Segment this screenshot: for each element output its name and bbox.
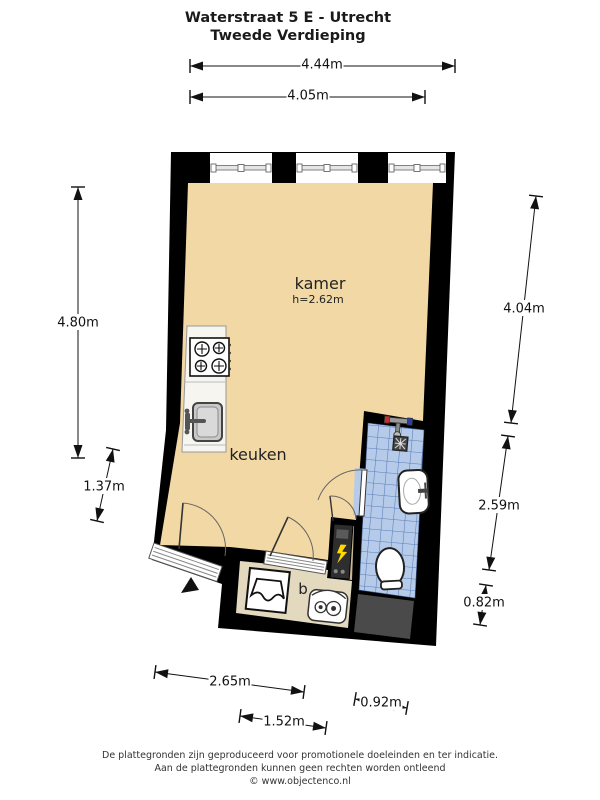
dimension: 4.04m [503, 195, 546, 424]
dimension: 2.65m [154, 665, 305, 699]
dimension-label: 1.52m [263, 715, 305, 730]
boiler-icon [307, 588, 348, 623]
dimension-label: 4.80m [57, 316, 99, 331]
dimension: 2.59m [478, 435, 521, 571]
footer-copyright: © www.objectenco.nl [249, 776, 351, 787]
dimension-label: 2.59m [478, 499, 520, 514]
dimension-label: 1.37m [83, 480, 125, 495]
footer-disclaimer-1: De plattegronden zijn geproduceerd voor … [102, 750, 498, 761]
page-title: Waterstraat 5 E - Utrecht [185, 10, 391, 26]
drain-icon [393, 436, 408, 451]
meter-cabinet-icon [330, 524, 353, 579]
page-subtitle: Tweede Verdieping [210, 28, 365, 44]
b-room-label: b [298, 580, 308, 598]
dimension: 4.05m [190, 87, 425, 104]
footer-disclaimer-2: Aan de plattegronden kunnen geen rechten… [154, 763, 445, 774]
floorplan-page: Waterstraat 5 E - Utrecht Tweede Verdiep… [0, 0, 600, 800]
dimension: 0.92m [354, 692, 408, 715]
washer-icon [246, 568, 290, 613]
dimension: 4.80m [57, 187, 100, 458]
floorplan-canvas: Waterstraat 5 E - Utrecht Tweede Verdiep… [0, 0, 600, 800]
building: kamer h=2.62m keuken b [149, 152, 455, 646]
window-top-3 [388, 153, 446, 183]
dimension: 1.52m [239, 709, 327, 735]
washbasin-icon [398, 469, 429, 513]
dimension-label: 4.05m [287, 89, 329, 104]
north-arrow-icon [181, 577, 199, 593]
dimension-label: 4.44m [301, 58, 343, 73]
dimension: 0.82m [463, 584, 506, 626]
kamer-height-label: h=2.62m [292, 293, 343, 306]
stove-icon [190, 338, 231, 376]
dimension: 1.37m [83, 447, 126, 522]
dimension-label: 0.92m [360, 696, 402, 711]
dimension: 4.44m [190, 56, 455, 73]
window-top-2 [296, 153, 358, 183]
dimension-label: 2.65m [209, 675, 251, 690]
dimension-label: 4.04m [503, 302, 545, 317]
dimension-label: 0.82m [463, 596, 505, 611]
window-top-1 [210, 153, 272, 183]
keuken-label: keuken [229, 445, 286, 464]
kamer-label: kamer [295, 274, 346, 293]
void-area [354, 594, 414, 639]
